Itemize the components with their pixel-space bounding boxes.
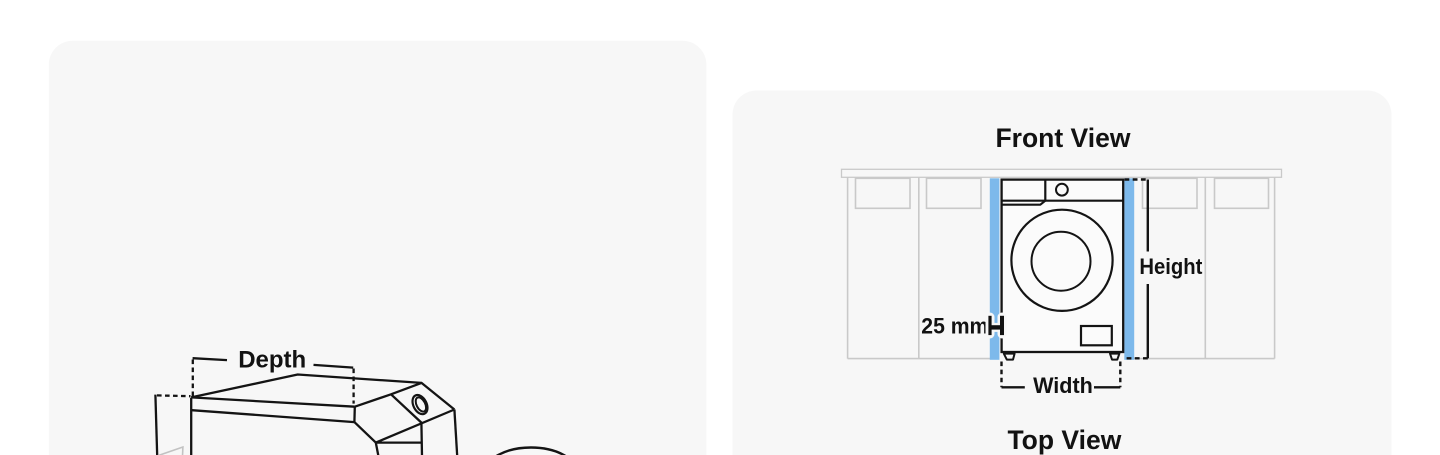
svg-text:Height: Height [1139,254,1202,279]
svg-text:Front View: Front View [996,123,1131,153]
svg-text:25 mm: 25 mm [921,313,988,338]
svg-text:Width: Width [1033,373,1093,399]
svg-text:Top View: Top View [1007,425,1121,455]
svg-text:Depth: Depth [238,347,306,374]
